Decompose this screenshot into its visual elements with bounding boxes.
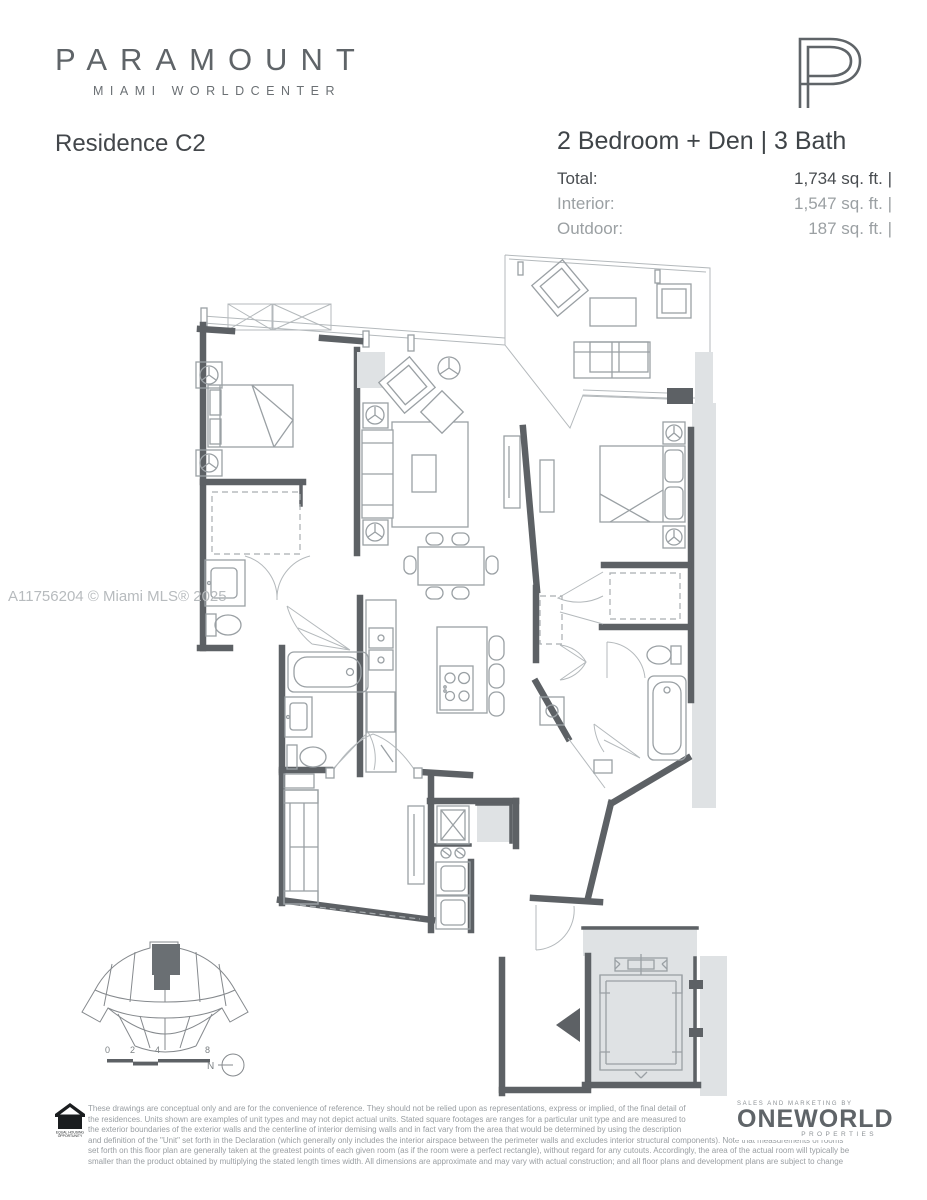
entry-door-swing (536, 905, 574, 950)
master-toilet (647, 646, 681, 664)
svg-text:2: 2 (130, 1045, 135, 1055)
living-room (362, 357, 520, 545)
kitchen (366, 600, 504, 772)
stat-row-total: Total: 1,734 sq. ft. | 161 m2 (557, 168, 927, 193)
svg-text:OPPORTUNITY: OPPORTUNITY (58, 1134, 83, 1137)
brand-logo: PARAMOUNT MIAMI WORLDCENTER (55, 42, 368, 98)
closet-doors (245, 556, 310, 600)
dresser (540, 460, 554, 512)
disclaimer-line: smaller than the product obtained by mul… (88, 1157, 849, 1168)
shower-door (287, 606, 350, 650)
stat-row-outdoor: Outdoor: 187 sq. ft. | 17 m2 (557, 218, 927, 243)
toilet-2 (206, 614, 241, 636)
terrace-table (590, 298, 636, 326)
window-band-north (201, 304, 505, 351)
den (284, 734, 424, 919)
brand-name: PARAMOUNT (55, 42, 368, 78)
coffee-table (412, 455, 436, 492)
toilet-3 (287, 745, 326, 769)
bar-stool (489, 636, 504, 660)
master-console (590, 342, 648, 372)
oneworld-logo: SALES AND MARKETING BY ONEWORLD PROPERTI… (735, 1100, 877, 1140)
scale-bar: 0 2 4 8 (105, 1045, 210, 1066)
svg-text:8: 8 (205, 1045, 210, 1055)
oneworld-name: ONEWORLD (737, 1107, 877, 1131)
dining-chair (452, 533, 469, 545)
kitchen-counter (366, 600, 396, 772)
page-title-residence: Residence C2 (55, 130, 206, 158)
master-shower-door (594, 724, 640, 758)
dining-chair (404, 556, 416, 574)
speaker-icon (663, 526, 685, 548)
hall-door (568, 738, 605, 788)
side-table (438, 357, 460, 379)
den-side-table (284, 774, 314, 788)
bar-stool (489, 664, 504, 688)
double-door-swing (560, 645, 586, 680)
master-closet-dashed (610, 573, 680, 619)
ottoman (421, 391, 463, 433)
tv-console (504, 436, 520, 508)
stacked-dryer (436, 862, 470, 929)
terrace-chair-angled (532, 260, 588, 316)
master-bed (600, 446, 685, 522)
kitchen-island (437, 627, 487, 713)
fridge (367, 692, 395, 732)
washer (437, 806, 469, 844)
bath3-door (332, 732, 375, 770)
french-doors (332, 734, 416, 772)
bathroom-2 (205, 560, 368, 692)
bathtub-2 (288, 652, 368, 692)
laundry (436, 806, 470, 929)
dining-area (404, 533, 498, 599)
unit-configuration: 2 Bedroom + Den | 3 Bath (557, 127, 846, 156)
stat-row-interior: Interior: 1,547 sq. ft. | 144 m2 (557, 193, 927, 218)
keyplan-unit-highlight (152, 944, 180, 990)
equal-housing-icon: EQUAL HOUSING OPPORTUNITY (55, 1103, 85, 1137)
entry (536, 905, 574, 950)
paramount-monogram-icon (788, 36, 866, 110)
speaker-icon (663, 422, 685, 444)
keyplan-building (82, 942, 248, 1052)
svg-text:4: 4 (155, 1045, 160, 1055)
den-sofa (284, 790, 318, 904)
bar-stool (489, 692, 504, 716)
dining-chair (426, 587, 443, 599)
speaker-icon (363, 520, 388, 545)
disclaimer-line: set forth on this floor plan are general… (88, 1146, 849, 1157)
dining-table (418, 547, 484, 585)
keyplan: 0 2 4 8 N (82, 942, 248, 1076)
svg-text:N: N (207, 1061, 214, 1072)
master-bath-door (607, 642, 645, 678)
north-arrow: N (207, 1054, 244, 1076)
dining-chair (486, 556, 498, 574)
den-console (408, 806, 424, 884)
speaker-icon (363, 403, 388, 428)
dining-chair (426, 533, 443, 545)
linen-closet-dashed (540, 596, 562, 644)
oven-handle (381, 745, 393, 762)
master-bedroom (540, 342, 685, 624)
mls-watermark: A11756204 © Miami MLS® 2025 (8, 588, 227, 605)
closet-2-dashed (212, 492, 300, 554)
dining-chair (452, 587, 469, 599)
master-bathroom (594, 642, 686, 760)
brand-subname: MIAMI WORLDCENTER (93, 84, 368, 98)
closet-door-swing (558, 572, 603, 624)
entry-arrow (556, 1008, 580, 1042)
area-stats: Total: 1,734 sq. ft. | 161 m2 Interior: … (557, 168, 927, 243)
svg-text:0: 0 (105, 1045, 110, 1055)
master-tub (648, 676, 686, 760)
